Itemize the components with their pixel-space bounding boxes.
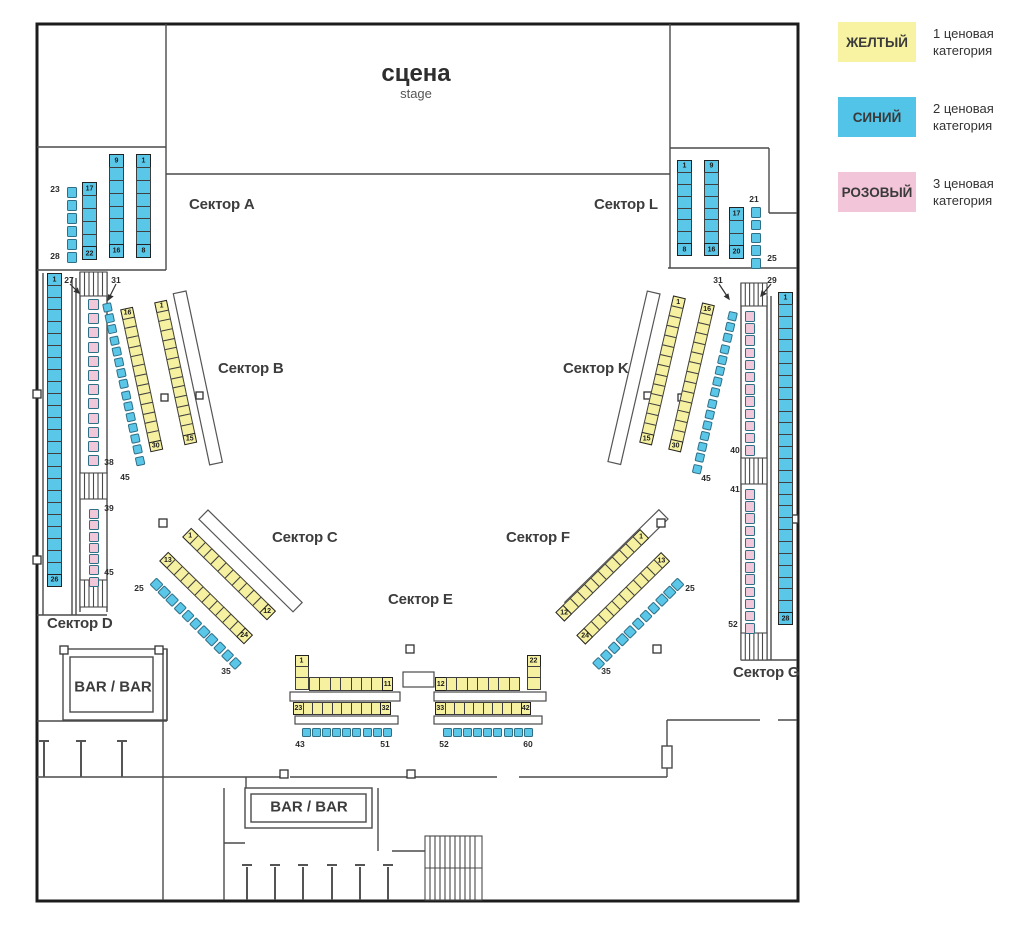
seat[interactable]: [88, 327, 99, 338]
seat[interactable]: [88, 370, 99, 381]
seat-row-L-9-16: 916: [705, 160, 713, 256]
seat-row-L-17-20: 1720: [730, 207, 738, 259]
seat[interactable]: [745, 526, 756, 537]
seat[interactable]: [88, 313, 99, 324]
seat[interactable]: [123, 401, 134, 412]
seat[interactable]: [750, 207, 761, 218]
seat[interactable]: [373, 728, 382, 737]
seat[interactable]: [745, 421, 756, 432]
seat[interactable]: [88, 398, 99, 409]
seat[interactable]: [110, 231, 125, 245]
seat[interactable]: 17: [83, 182, 98, 196]
seat-row-L-21-25: [750, 207, 755, 269]
seat[interactable]: [504, 728, 513, 737]
seat-row-A-9-16: 916: [110, 154, 118, 258]
seat[interactable]: [463, 728, 472, 737]
seat[interactable]: 8: [137, 244, 152, 258]
legend-desc-3: 3 ценовая категория: [933, 172, 994, 209]
seat[interactable]: [383, 728, 392, 737]
seat[interactable]: [493, 728, 502, 737]
queue-barriers: [39, 741, 393, 900]
seat[interactable]: [352, 728, 361, 737]
seat[interactable]: [125, 411, 136, 422]
venue-seating-map: сцена stage BAR / BAR BAR / BAR ЖЕЛТЫЙ 1…: [0, 0, 1024, 933]
seat[interactable]: [745, 501, 756, 512]
seat[interactable]: [745, 587, 756, 598]
seat[interactable]: [121, 390, 132, 401]
seat[interactable]: [745, 311, 756, 322]
sector-label-G: Сектор G: [733, 664, 799, 681]
seat[interactable]: [702, 420, 713, 431]
seat[interactable]: [745, 445, 756, 456]
seat[interactable]: [722, 333, 733, 344]
row-number-label: 51: [380, 739, 389, 749]
seat[interactable]: 9: [110, 154, 125, 168]
legend-desc-line: 3 ценовая: [933, 175, 994, 192]
row-number-label: 25: [134, 583, 143, 593]
row-number-label: 45: [104, 567, 113, 577]
seat[interactable]: [88, 427, 99, 438]
seat[interactable]: [137, 167, 152, 181]
legend-swatch-yellow: ЖЕЛТЫЙ: [838, 22, 916, 62]
seat[interactable]: [332, 728, 341, 737]
seat[interactable]: [66, 213, 77, 224]
seat[interactable]: [130, 433, 141, 444]
legend-desc-line: категория: [933, 117, 994, 134]
seat[interactable]: [720, 344, 731, 355]
row-number-label: 27: [64, 275, 73, 285]
row-number-label: 29: [767, 275, 776, 285]
row-number-label: 52: [728, 619, 737, 629]
seat[interactable]: [745, 335, 756, 346]
seat[interactable]: [89, 577, 99, 587]
seat[interactable]: [137, 206, 152, 220]
sector-label-L: Сектор L: [594, 196, 658, 213]
seat[interactable]: [88, 441, 99, 452]
row-number-label: 60: [523, 739, 532, 749]
seat-row-L-1-8: 18: [678, 160, 686, 256]
seat[interactable]: 17: [730, 207, 745, 221]
row-number-label: 25: [685, 583, 694, 593]
seat[interactable]: [699, 431, 710, 442]
seat[interactable]: 32: [380, 702, 391, 715]
row-number-label: 25: [767, 253, 776, 263]
seat-row-E-52-60: [443, 732, 533, 737]
seat[interactable]: [89, 520, 99, 530]
seat[interactable]: [135, 455, 146, 466]
seat-row-E-1-3: 1: [295, 655, 302, 690]
seat[interactable]: [88, 455, 99, 466]
stage-title: сцена: [166, 62, 666, 86]
seat[interactable]: 22: [83, 246, 98, 260]
seat[interactable]: [750, 245, 761, 256]
seat[interactable]: 8: [678, 243, 693, 256]
floorplan-walls: [0, 0, 1024, 933]
seat[interactable]: [745, 433, 756, 444]
seat-row-G-29-40: [745, 311, 750, 456]
seat[interactable]: [102, 302, 113, 313]
seat-row-G-41-52: [745, 489, 750, 634]
seat[interactable]: [704, 409, 715, 420]
legend-swatch-blue: СИНИЙ: [838, 97, 916, 137]
seat[interactable]: [128, 422, 139, 433]
row-number-label: 35: [221, 666, 230, 676]
seat[interactable]: [312, 728, 321, 737]
row-number-label: 41: [730, 484, 739, 494]
seat[interactable]: [707, 398, 718, 409]
seat[interactable]: [110, 218, 125, 232]
sector-label-A: Сектор A: [189, 196, 255, 213]
seat[interactable]: [363, 728, 372, 737]
seat[interactable]: 16: [705, 243, 720, 256]
row-number-label: 31: [713, 275, 722, 285]
stairs-bottom-center: [425, 836, 482, 900]
aisle-strips: [173, 291, 668, 612]
seat[interactable]: [132, 444, 143, 455]
seat[interactable]: 28: [778, 612, 793, 625]
seat[interactable]: [750, 258, 761, 269]
sector-label-C: Сектор C: [272, 529, 338, 546]
row-number-label: 45: [701, 473, 710, 483]
seat[interactable]: [730, 233, 745, 247]
seat[interactable]: [89, 509, 99, 519]
seat[interactable]: [111, 346, 122, 357]
seat[interactable]: [83, 234, 98, 248]
seat[interactable]: [88, 299, 99, 310]
seat[interactable]: 20: [730, 245, 745, 259]
seat-row-E-20-22: 22: [527, 655, 534, 690]
seat[interactable]: [727, 311, 738, 322]
seat-row-D-39-45: [89, 509, 94, 587]
seat[interactable]: [110, 167, 125, 181]
seat[interactable]: [524, 728, 533, 737]
row-number-label: 28: [50, 251, 59, 261]
seat[interactable]: [295, 677, 309, 689]
seat[interactable]: [342, 728, 351, 737]
seat[interactable]: [66, 200, 77, 211]
seat[interactable]: [725, 322, 736, 333]
seat[interactable]: [66, 252, 77, 263]
sector-label-B: Сектор B: [218, 360, 284, 377]
seat[interactable]: 26: [47, 574, 62, 587]
seat-row-A-17-22: 1722: [83, 182, 91, 260]
legend-desc-1: 1 ценовая категория: [933, 22, 994, 59]
legend-swatch-pink: РОЗОВЫЙ: [838, 172, 916, 212]
seat-row-D-1-26: 126: [47, 273, 55, 587]
seat[interactable]: [715, 365, 726, 376]
seat[interactable]: [137, 193, 152, 207]
seat-row-A-23-28: [66, 187, 71, 263]
seat[interactable]: [83, 208, 98, 222]
seat[interactable]: [110, 193, 125, 207]
legend-desc-line: категория: [933, 192, 994, 209]
seat[interactable]: [509, 677, 521, 691]
legend-desc-2: 2 ценовая категория: [933, 97, 994, 134]
seat[interactable]: [118, 379, 129, 390]
seat[interactable]: [514, 728, 523, 737]
seat[interactable]: [66, 226, 77, 237]
legend-row-pink: РОЗОВЫЙ 3 ценовая категория: [838, 172, 994, 212]
row-number-label: 38: [104, 457, 113, 467]
seat[interactable]: [110, 180, 125, 194]
seat[interactable]: [745, 396, 756, 407]
seat[interactable]: [745, 489, 756, 500]
seat[interactable]: [745, 348, 756, 359]
seat[interactable]: [89, 554, 99, 564]
sector-label-F: Сектор F: [506, 529, 570, 546]
seat[interactable]: [83, 221, 98, 235]
seat[interactable]: [745, 574, 756, 585]
seat[interactable]: [83, 195, 98, 209]
seat[interactable]: [88, 342, 99, 353]
seat-row-E-12-19: 12: [435, 684, 520, 691]
seat[interactable]: [473, 728, 482, 737]
seat[interactable]: [745, 538, 756, 549]
seat[interactable]: [745, 611, 756, 622]
seat[interactable]: 16: [110, 244, 125, 258]
seat[interactable]: [66, 239, 77, 250]
seat[interactable]: [712, 376, 723, 387]
row-number-label: 45: [120, 472, 129, 482]
row-number-label: 31: [111, 275, 120, 285]
stage-area: сцена stage: [166, 62, 666, 102]
seat[interactable]: [114, 357, 125, 368]
seat[interactable]: [745, 360, 756, 371]
legend-row-blue: СИНИЙ 2 ценовая категория: [838, 97, 994, 137]
seat[interactable]: [109, 335, 120, 346]
seat[interactable]: [88, 356, 99, 367]
seat[interactable]: [694, 453, 705, 464]
seat[interactable]: [66, 187, 77, 198]
bar-bottom-label: BAR / BAR: [270, 799, 348, 816]
sound-console: [403, 672, 434, 687]
seat[interactable]: [89, 565, 99, 575]
stage-subtitle: stage: [166, 86, 666, 102]
seat[interactable]: 42: [521, 702, 532, 715]
seat[interactable]: [89, 532, 99, 542]
legend-desc-line: категория: [933, 42, 994, 59]
seat[interactable]: [745, 323, 756, 334]
seat[interactable]: [717, 355, 728, 366]
seat[interactable]: 1: [137, 154, 152, 168]
sector-label-E: Сектор E: [388, 591, 453, 608]
seat[interactable]: 11: [382, 677, 393, 691]
row-number-label: 40: [730, 445, 739, 455]
seat[interactable]: [137, 218, 152, 232]
seat[interactable]: [302, 728, 311, 737]
seat-row-E-4-11: 11: [309, 684, 393, 691]
stairs-left-mid: [80, 473, 107, 499]
seat[interactable]: [750, 233, 761, 244]
arrow-31-right: [719, 284, 729, 299]
seat[interactable]: [745, 372, 756, 383]
seat-row-A-1-8: 18: [137, 154, 145, 258]
seat[interactable]: [745, 562, 756, 573]
seat[interactable]: [745, 599, 756, 610]
bar-left-label: BAR / BAR: [74, 679, 152, 696]
seat[interactable]: [527, 677, 541, 689]
seat-row-E-23-32: 2332: [293, 709, 391, 716]
seat[interactable]: [443, 728, 452, 737]
row-number-label: 43: [295, 739, 304, 749]
sector-label-D: Сектор D: [47, 615, 113, 632]
seat[interactable]: [104, 313, 115, 324]
row-number-label: 39: [104, 503, 113, 513]
seat[interactable]: [483, 728, 492, 737]
seat[interactable]: [137, 180, 152, 194]
seat[interactable]: [137, 231, 152, 245]
seat[interactable]: [709, 387, 720, 398]
seat[interactable]: [697, 442, 708, 453]
seat[interactable]: [107, 324, 118, 335]
row-number-label: 21: [749, 194, 758, 204]
row-number-label: 52: [439, 739, 448, 749]
stairs-right-bottom: [741, 633, 767, 660]
seat[interactable]: [88, 384, 99, 395]
seat[interactable]: [745, 623, 756, 634]
seat[interactable]: [453, 728, 462, 737]
row-number-label: 23: [50, 184, 59, 194]
seat-row-E-43-51: [302, 732, 392, 737]
seat-row-E-33-42: 3342: [435, 709, 531, 716]
legend-desc-line: 2 ценовая: [933, 100, 994, 117]
seat[interactable]: [745, 550, 756, 561]
seat[interactable]: [89, 543, 99, 553]
sector-label-K: Сектор K: [563, 360, 629, 377]
seat[interactable]: [745, 513, 756, 524]
arrow-31-left: [108, 284, 116, 300]
row-number-label: 35: [601, 666, 610, 676]
seat[interactable]: [88, 413, 99, 424]
seat[interactable]: [750, 220, 761, 231]
seat[interactable]: [745, 384, 756, 395]
stairs-left-top: [80, 272, 107, 296]
stairs-right-mid: [741, 458, 767, 484]
seat[interactable]: [322, 728, 331, 737]
seat[interactable]: [110, 206, 125, 220]
seat[interactable]: [730, 220, 745, 234]
seat[interactable]: [116, 368, 127, 379]
legend-desc-line: 1 ценовая: [933, 25, 994, 42]
seat-row-D-27-38: [88, 299, 94, 466]
seat-row-G-1-28: 128: [778, 292, 786, 625]
seat[interactable]: [745, 409, 756, 420]
legend-row-yellow: ЖЕЛТЫЙ 1 ценовая категория: [838, 22, 994, 62]
